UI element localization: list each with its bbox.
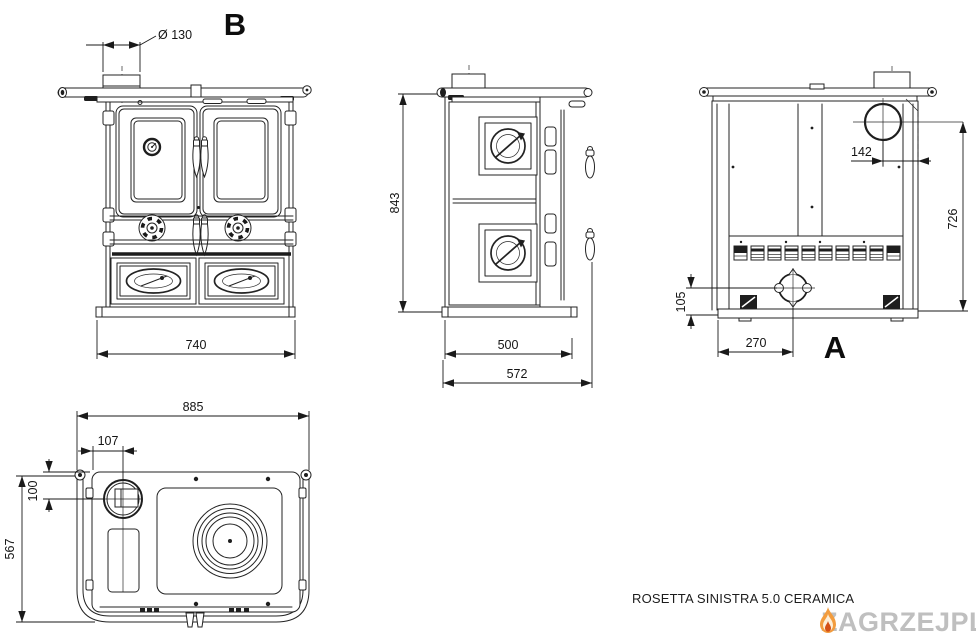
watermark-suffix: PL xyxy=(951,607,976,638)
dim-front-width: 740 xyxy=(97,320,295,359)
side-decor-panel-upper xyxy=(479,117,537,175)
dim-label-flue-diameter: Ø 130 xyxy=(158,28,192,42)
drawer-panel-left xyxy=(111,258,196,304)
dim-label-front-width: 740 xyxy=(186,338,207,352)
dim-rear-flue-height: 726 xyxy=(918,122,968,311)
side-decor-panel-lower xyxy=(479,224,537,282)
side-top-rail xyxy=(437,88,592,107)
dim-top-depth: 567 xyxy=(3,476,95,622)
front-view xyxy=(58,66,311,317)
air-control-left xyxy=(139,215,165,241)
technical-drawing-canvas: Ø 130 740 B xyxy=(0,0,976,641)
view-label-B: B xyxy=(224,7,246,42)
dim-label-top-width-total: 885 xyxy=(183,400,204,414)
dim-label-rear-flue-offset: 142 xyxy=(851,145,872,159)
dim-front-flue-diameter: Ø 130 xyxy=(86,28,192,72)
dim-side-depth-body: 500 xyxy=(445,320,572,359)
dim-side-height: 843 xyxy=(388,94,442,312)
side-view xyxy=(437,65,595,317)
rear-base-plinth xyxy=(718,309,918,321)
dim-label-rear-flue-height: 726 xyxy=(946,209,960,230)
front-base-plinth xyxy=(96,307,295,317)
dim-rear-inlet-height: 105 xyxy=(674,274,777,329)
flame-icon xyxy=(817,607,839,637)
watermark-brand: ZAGRZEJ xyxy=(821,607,951,638)
dim-label-side-height: 843 xyxy=(388,193,402,214)
rear-feet xyxy=(740,295,900,309)
model-title: ROSETTA SINISTRA 5.0 CERAMICA xyxy=(632,591,854,606)
thermometer-gauge xyxy=(144,139,160,155)
side-base-plinth xyxy=(442,307,577,317)
top-view xyxy=(75,470,311,627)
dim-label-side-depth-body: 500 xyxy=(498,338,519,352)
dim-label-top-depth: 567 xyxy=(3,539,17,560)
rear-view xyxy=(700,66,964,321)
dim-label-side-depth-total: 572 xyxy=(507,367,528,381)
air-control-right xyxy=(225,215,251,241)
technical-drawing-page: Ø 130 740 B xyxy=(0,0,976,641)
dim-label-rear-inlet-offset: 270 xyxy=(746,336,767,350)
rear-vent-grille xyxy=(734,241,900,260)
side-hinges-and-handles xyxy=(545,127,595,266)
view-label-A: A xyxy=(824,330,846,365)
watermark: ZAGRZEJ PL xyxy=(821,607,976,638)
front-oven-door-right xyxy=(200,106,281,217)
dim-label-top-flue-x: 107 xyxy=(98,434,119,448)
drawer-panel-right xyxy=(199,258,284,304)
front-oven-door-left xyxy=(116,106,197,217)
dim-label-rear-inlet-height: 105 xyxy=(674,292,688,313)
rear-air-inlet xyxy=(771,268,815,308)
front-worktop-edge xyxy=(97,97,293,105)
dim-label-top-flue-y: 100 xyxy=(26,481,40,502)
